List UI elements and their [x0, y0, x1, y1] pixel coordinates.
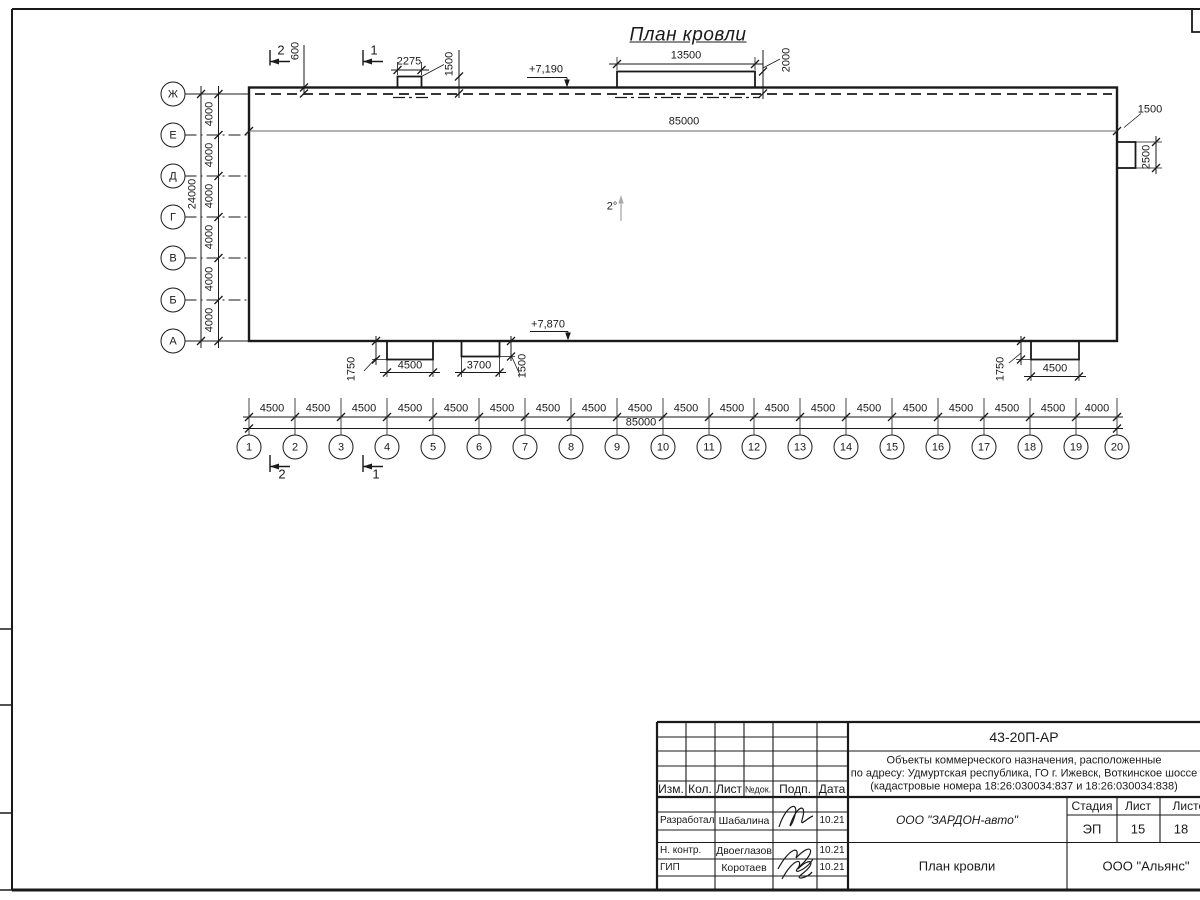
dim-span: 4500: [857, 404, 881, 415]
date-ncontrol: 10.21: [819, 846, 844, 856]
dim-span: 4500: [582, 404, 606, 415]
canopy-1: [387, 341, 433, 360]
name-gip: Коротаев: [721, 863, 766, 874]
vent-shaft-2: [617, 72, 755, 88]
axis-bubble: Б: [161, 288, 186, 313]
axis-bubble: 13: [788, 435, 813, 460]
elevation-top-label: +7,190: [529, 65, 563, 76]
client-company: ООО "ЗАРДОН-авто": [896, 814, 1018, 826]
axis-bubble: Д: [161, 164, 186, 189]
dim-span: 4500: [765, 404, 789, 415]
doc-code: 43-20П-АР: [989, 730, 1058, 744]
role-developer: Разработал: [660, 816, 714, 826]
sheet-label: Лист: [1125, 800, 1151, 812]
vent-shaft-1: [398, 77, 422, 88]
axis-bubble: 16: [926, 435, 951, 460]
canopy-2: [462, 341, 500, 357]
dim-span: 4500: [536, 404, 560, 415]
dim-canopy3-width: 4500: [1043, 364, 1067, 375]
dim-span: 4500: [811, 404, 835, 415]
dim-canopy1-width: 4500: [398, 361, 422, 372]
axis-bubble: 17: [972, 435, 997, 460]
axis-bubble: 5: [421, 435, 446, 460]
axis-bubble: 15: [880, 435, 905, 460]
dim-canopy3-height: 1750: [996, 357, 1007, 381]
canopy-3: [1031, 341, 1079, 360]
axis-lines: [185, 94, 250, 341]
dim-bay: 4000: [205, 267, 216, 291]
axis-bubble: 10: [651, 435, 676, 460]
sheets-label: Листов: [1173, 800, 1200, 812]
dim-span: 4500: [306, 404, 330, 415]
col-ndok: №док.: [745, 786, 771, 795]
col-data: Дата: [819, 783, 846, 795]
sheets-total: 18: [1174, 823, 1188, 836]
axis-bubble: В: [161, 246, 186, 271]
elevation-bottom-label: +7,870: [531, 320, 565, 331]
dim-span: 4500: [949, 404, 973, 415]
section-mark-label: 2: [278, 468, 285, 481]
dim-rightbox-height: 2500: [1142, 145, 1153, 169]
axis-bubble: А: [161, 329, 186, 354]
dim-span: 4500: [398, 404, 422, 415]
right-box: [1117, 142, 1136, 168]
dim-span: 4000: [1085, 404, 1109, 415]
dim-span: 4500: [995, 404, 1019, 415]
axis-bubble: Ж: [161, 82, 186, 107]
section-mark-label: 1: [372, 468, 379, 481]
dim-bay: 4000: [205, 102, 216, 126]
stage-label: Стадия: [1072, 800, 1113, 812]
section-mark-label: 2: [277, 44, 284, 57]
axis-bubble: 8: [559, 435, 584, 460]
dim-span: 4500: [490, 404, 514, 415]
axis-bubble: 14: [834, 435, 859, 460]
slope-label: 2°: [607, 202, 618, 213]
axis-bubble: 19: [1064, 435, 1089, 460]
role-ncontrol: Н. контр.: [660, 846, 701, 856]
extension-lines: [249, 57, 1162, 436]
dim-span: 4500: [444, 404, 468, 415]
dim-overhang: 600: [291, 42, 302, 60]
name-ncontrol: Двоеглазов: [716, 846, 772, 857]
axis-bubble: Е: [161, 123, 186, 148]
col-kol: Кол.: [688, 783, 712, 795]
axis-bubble: 18: [1018, 435, 1043, 460]
elevation-underlines: [527, 78, 568, 332]
leader-lines: [364, 59, 1141, 375]
dim-span: 4500: [260, 404, 284, 415]
dim-canopy1-height: 1750: [347, 357, 358, 381]
dim-bay: 4000: [205, 143, 216, 167]
axis-bubble: 11: [697, 435, 722, 460]
axis-bubble: 1: [237, 435, 262, 460]
project-address-line2: по адресу: Удмуртская республика, ГО г. …: [851, 769, 1197, 780]
dim-vent2-height: 2000: [782, 48, 793, 72]
dim-bay: 4000: [205, 308, 216, 332]
dim-bay: 4000: [205, 184, 216, 208]
dim-bay: 4000: [205, 225, 216, 249]
dim-span: 4500: [628, 404, 652, 415]
date-developer: 10.21: [819, 816, 844, 826]
axis-bubble: 9: [605, 435, 630, 460]
axis-bubble: 6: [467, 435, 492, 460]
contractor-company: ООО "Альянс": [1103, 860, 1190, 873]
dim-ridge-length: 85000: [669, 117, 700, 128]
dim-total-length: 85000: [626, 418, 657, 429]
dimension-lines: [201, 45, 1156, 429]
axis-bubble: 20: [1105, 435, 1130, 460]
drawing-title: План кровли: [630, 26, 747, 45]
axis-bubble: Г: [161, 205, 186, 230]
section-mark-label: 1: [370, 44, 377, 57]
name-developer: Шабалина: [719, 816, 770, 827]
axis-bubble: 2: [283, 435, 308, 460]
dim-span: 4500: [674, 404, 698, 415]
dim-vent2-width: 13500: [671, 51, 702, 62]
dim-rightbox-width: 1500: [1138, 105, 1162, 116]
col-izm: Изм.: [658, 783, 684, 795]
project-address-line1: Объекты коммерческого назначения, распол…: [887, 756, 1162, 767]
date-gip: 10.21: [819, 863, 844, 873]
dim-span: 4500: [720, 404, 744, 415]
dim-canopy2-height: 1500: [518, 354, 529, 378]
drawing-sheet: План кровли +7,190 +7,870 2° 600 85000 2…: [0, 0, 1200, 900]
dim-vent1-width: 2275: [397, 57, 421, 68]
rooftop-structures: [387, 72, 1136, 360]
stage-value: ЭП: [1083, 823, 1102, 836]
sheet-name: План кровли: [919, 860, 996, 873]
dim-span: 4500: [1041, 404, 1065, 415]
sheet-number: 15: [1131, 823, 1145, 836]
dim-canopy2-width: 3700: [467, 361, 491, 372]
project-address-line3: (кадастровые номера 18:26:030034:837 и 1…: [870, 782, 1178, 793]
role-gip: ГИП: [660, 863, 680, 873]
col-list: Лист: [716, 783, 742, 795]
dim-vent1-height: 1500: [445, 52, 456, 76]
col-podp: Подп.: [779, 783, 811, 795]
dim-span: 4500: [352, 404, 376, 415]
axis-bubble: 4: [375, 435, 400, 460]
axis-bubble: 7: [513, 435, 538, 460]
dim-total-depth: 24000: [188, 179, 199, 210]
axis-bubble: 12: [742, 435, 767, 460]
axis-bubble: 3: [329, 435, 354, 460]
dim-span: 4500: [903, 404, 927, 415]
